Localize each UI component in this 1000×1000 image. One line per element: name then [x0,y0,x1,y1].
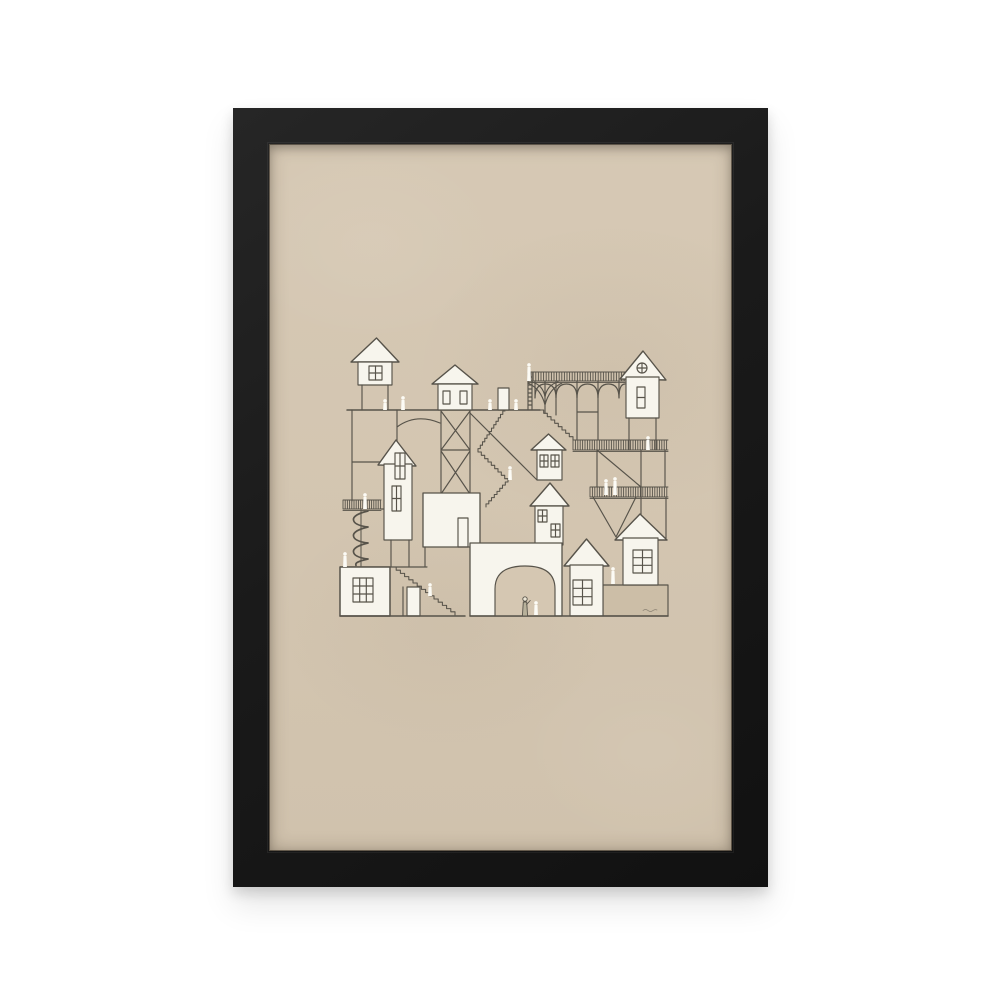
house-stacked-lower [530,483,569,545]
house-square-bottomleft [340,567,390,616]
village-illustration [335,335,675,625]
arched-gateway [470,543,562,616]
spiral-staircase [353,509,385,566]
x-braced-tower [441,410,537,495]
product-photo: Hand-drawn illustration of a whimsical v… [0,0,1000,1000]
shaded-wall [603,585,668,616]
house-bottom-center [564,539,609,616]
print-paper [269,144,732,851]
standalone-door [498,388,509,410]
curved-support [528,381,562,413]
artwork-caption: Hand-drawn illustration of a whimsical v… [233,108,234,109]
house-tall-narrow [378,440,416,567]
house-tall-right [620,351,666,450]
house-stacked-upper [531,434,566,480]
house-stilt-topleft [351,338,399,410]
picture-frame: Hand-drawn illustration of a whimsical v… [233,108,768,887]
viaduct-legs [556,398,598,440]
house-tower-top [432,365,478,410]
